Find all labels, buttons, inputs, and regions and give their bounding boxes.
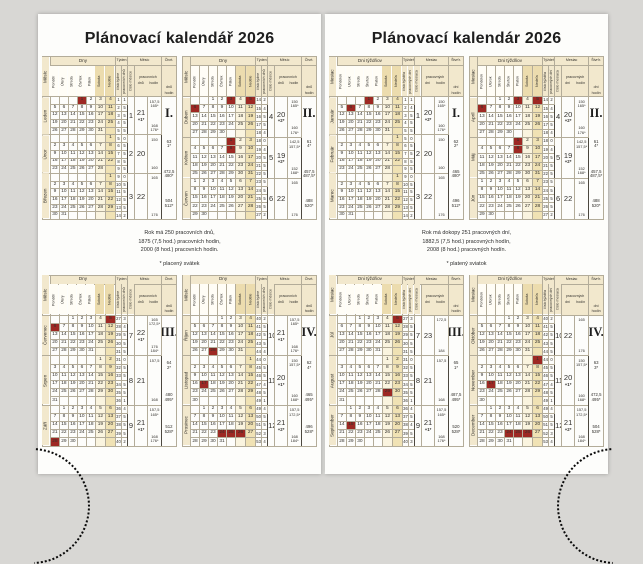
hours-wrap: 165176: [288, 179, 301, 219]
month-summary-group-header: Mesiac: [414, 275, 448, 284]
day-cell: 20: [373, 196, 382, 204]
month-hours-cell: 150165*160176*: [288, 97, 302, 138]
paid-holiday-note: * platený sviatok: [325, 261, 608, 267]
day-cell: 9: [105, 364, 115, 372]
day-cell: 24: [382, 120, 392, 128]
quarter-days-label: dnů: [162, 86, 176, 90]
day-cell: 7: [95, 181, 105, 189]
day-cell: 25: [382, 340, 392, 348]
day-cell: 21: [86, 381, 95, 389]
day-cell: 14: [209, 331, 218, 339]
day-cell: 6: [59, 104, 68, 112]
paid-holiday-extra: +2*: [562, 428, 574, 432]
day-cell: 26: [68, 389, 77, 397]
day-cell: 22: [105, 196, 115, 204]
month-hours-cell: 150165*160176*: [434, 97, 448, 135]
day-cell: 24: [496, 203, 505, 211]
month-number-cell: 3: [128, 173, 135, 219]
day-cell: [382, 173, 392, 181]
day-cell: 9: [227, 323, 236, 331]
day-cell: 4: [95, 315, 105, 323]
month-hours-cell: 165176: [575, 315, 589, 356]
day-cell: 25: [95, 340, 105, 348]
hours-value: 528*: [305, 430, 314, 434]
quarter-sub-header: dníhodín: [589, 284, 604, 315]
day-cell: [68, 97, 77, 105]
day-cell: 2: [523, 137, 533, 145]
day-cell: 8: [209, 105, 218, 113]
day-cell: 5: [105, 315, 115, 323]
working-label: pracovních: [275, 295, 301, 299]
week-row: Október12344021022165176IV.633*472,5495*…: [470, 315, 604, 323]
day-name-label: Pondělí: [191, 66, 200, 97]
day-cell: 20: [487, 340, 496, 348]
day-cell: 19: [478, 340, 487, 348]
day-cell: 25: [105, 120, 115, 128]
day-cell: 9: [337, 150, 346, 158]
quarter-sub-header: dnůhodin: [302, 284, 317, 315]
quarter-numeral: IV.: [589, 326, 604, 339]
day-cell: [105, 166, 115, 174]
day-cell: 7: [487, 105, 496, 113]
day-cell: 2: [355, 405, 364, 413]
day-cell: [209, 397, 218, 405]
month-workdays-cell: 20: [135, 135, 148, 173]
day-cell: [50, 97, 59, 105]
day-cell: 13: [105, 413, 115, 421]
day-cell: 26: [523, 430, 533, 438]
day-cell: 23: [514, 340, 523, 348]
half-year-table-bottom: MesiacDni týždňovTýždeňMesiacŠtvrťr.Pond…: [325, 275, 608, 447]
hours-8: 152168*: [575, 167, 588, 176]
quarter-sub-header: dnůhodin: [162, 284, 177, 315]
quarter-sub-header: dníhodín: [449, 284, 464, 315]
days-group-header: Dny: [50, 57, 115, 66]
month-number-sub-label: číslo měsíce: [128, 284, 135, 315]
hours-7-5: 165172,5*: [148, 318, 161, 327]
planning-table-half: MesiacDni týždňovTýždeňMesiacŠtvrťr.Pond…: [469, 275, 604, 447]
day-cell: 12: [200, 154, 209, 162]
day-cell: 27: [50, 348, 59, 356]
day-cell: 15: [392, 189, 402, 197]
day-cell: 30: [50, 212, 59, 220]
day-cell: 21: [382, 158, 392, 166]
working-label: pracovných: [422, 295, 448, 299]
week-workdays-cell: 4: [408, 104, 414, 112]
day-cell: 27: [487, 348, 496, 356]
day-cell: 23: [373, 120, 382, 128]
hours-value: 165: [288, 181, 301, 185]
month-number-cell: 9: [414, 405, 421, 446]
hours-value: 184*: [288, 439, 301, 443]
day-cell: [191, 137, 200, 145]
day-cell: [337, 173, 346, 181]
day-cell: 17: [364, 421, 373, 429]
month-number-cell: 8: [128, 356, 135, 405]
month-hours-cell: 150160: [434, 135, 448, 173]
month-name-label: September: [329, 405, 337, 446]
day-cell: 3: [86, 315, 95, 323]
month-hours-cell: 157,5165*168176*: [288, 315, 302, 356]
day-cell: [191, 97, 200, 105]
day-cell: 10: [227, 105, 236, 113]
day-cell: 27: [191, 129, 200, 137]
day-cell: 26: [364, 204, 373, 212]
day-cell: 10: [95, 104, 105, 112]
day-cell: [95, 173, 105, 181]
day-cell: 30: [355, 438, 364, 446]
day-cell: 5: [355, 364, 364, 372]
hours-wrap: 157,5165*168176*: [148, 406, 161, 446]
working-subs: dníhodín: [422, 82, 448, 86]
day-cell: [77, 438, 86, 446]
header-row-groups: MesiacDni týždňovTýždeňMesiacŠtvrťr.: [329, 275, 463, 284]
day-cell: 22: [392, 196, 402, 204]
quarter-hours-8: 512528*: [165, 425, 174, 435]
day-cell: [533, 438, 543, 446]
day-cell: 25: [246, 340, 256, 348]
hours-value: 176: [575, 213, 588, 217]
week-workdays-cell: 5: [549, 364, 555, 372]
day-cell: 18: [191, 162, 200, 170]
day-cell: 5: [218, 364, 227, 372]
working-hours-label: hodín: [436, 301, 445, 305]
day-cell: 6: [86, 143, 95, 151]
day-cell: 16: [337, 196, 346, 204]
day-cell: 24: [59, 166, 68, 174]
day-cell: 1: [514, 137, 523, 145]
day-cell: 14: [246, 187, 256, 195]
day-cell: 17: [346, 158, 355, 166]
day-cell: 8: [487, 413, 496, 421]
day-cell: 2: [200, 178, 209, 186]
month-workdays-cell: 19+2*: [275, 137, 288, 178]
month-name-label: Duben: [183, 97, 191, 138]
day-cell: 16: [77, 331, 86, 339]
day-cell: 3: [209, 178, 218, 186]
day-cell: 1: [478, 178, 487, 186]
day-cell: 11: [496, 372, 505, 380]
day-cell: [236, 129, 246, 137]
working-hours-label: hodin: [149, 82, 158, 86]
day-cell: [392, 127, 402, 135]
day-name-label: Neděle: [246, 66, 256, 97]
day-cell: 9: [236, 146, 246, 154]
hours-wrap: 150160: [148, 135, 161, 172]
working-subs: dníhodín: [562, 82, 588, 86]
day-cell: 29: [505, 348, 514, 356]
quarter-subs: dníhodín: [589, 66, 603, 97]
day-cell: 6: [227, 364, 236, 372]
day-cell: 16: [364, 331, 373, 339]
day-cell: 25: [392, 120, 402, 128]
month-column-header: Mesiac: [470, 57, 478, 97]
day-cell: 10: [373, 323, 382, 331]
week-workdays-cell: 5: [262, 323, 268, 331]
day-cell: 18: [209, 381, 218, 389]
day-cell: 1: [364, 97, 373, 105]
hours-7-5: 150: [148, 137, 161, 142]
day-cell: 28: [496, 348, 505, 356]
quarter-days-label: dní: [449, 305, 463, 309]
hours-value: 176: [148, 213, 161, 217]
hours-7-5: 157,5165*: [148, 408, 161, 417]
hours-value: 184*: [148, 349, 161, 353]
day-cell: 6: [337, 323, 346, 331]
day-cell: 6: [523, 178, 533, 186]
day-cell: 9: [478, 372, 487, 380]
day-cell: 16: [86, 112, 95, 120]
day-cell: 18: [246, 331, 256, 339]
hours-wrap: 157,5172,5*168184*: [575, 406, 588, 446]
day-cell: [236, 438, 246, 446]
quarter-hours-label: hodín: [589, 92, 603, 96]
week-group-header: Týždeň: [543, 275, 555, 284]
month-column-header: Měsíc: [183, 57, 191, 97]
day-cell: 10: [218, 413, 227, 421]
month-workdays-cell: 21+2*: [275, 405, 288, 446]
day-cell: 3: [246, 137, 256, 145]
day-cell: 15: [246, 372, 256, 380]
day-cell: 20: [77, 381, 86, 389]
day-cell: 22: [478, 203, 487, 211]
hours-7-5: 150157,5*: [575, 358, 588, 367]
day-cell: 28: [218, 170, 227, 178]
week-row: November14401120+1*150157,5*160168*: [470, 356, 604, 364]
month-hours-cell: 157,5172,5*168184*: [575, 405, 589, 446]
day-cell: 3: [95, 97, 105, 105]
day-cell: 9: [514, 323, 523, 331]
day-cell: 26: [218, 389, 227, 397]
day-cell: 5: [514, 178, 523, 186]
day-cell: 3: [236, 315, 246, 323]
day-cell: 23: [505, 121, 514, 129]
day-cell: [514, 129, 523, 137]
day-cell: 14: [478, 421, 487, 429]
day-cell: 15: [533, 372, 543, 380]
week-workdays-cell: 5: [122, 430, 128, 438]
day-cell: 6: [105, 405, 115, 413]
week-workdays-cell: 5: [122, 166, 128, 174]
day-cell: [364, 173, 373, 181]
day-cell: 13: [533, 413, 543, 421]
day-cell: 9: [523, 146, 533, 154]
day-cell: [382, 212, 392, 220]
day-cell: [373, 397, 382, 405]
quarter-summary-cell: IV.624*465495*496528*: [302, 315, 317, 446]
day-name-label: Pátek: [227, 284, 236, 315]
day-cell: [50, 405, 59, 413]
day-cell: 6: [373, 181, 382, 189]
hours-value: 172,5*: [288, 413, 301, 417]
day-cell: 27: [86, 166, 95, 174]
planning-table-half: MěsícDnyTýdenMěsícČtvrt.PondělíÚterýStře…: [182, 56, 317, 220]
day-cell: 17: [246, 154, 256, 162]
day-cell: [77, 397, 86, 405]
day-cell: 11: [355, 189, 364, 197]
day-cell: 18: [514, 421, 523, 429]
week-workdays-cell: 5: [262, 421, 268, 429]
day-cell: 18: [218, 195, 227, 203]
hours-7-5: 142,5157,5*: [288, 140, 301, 149]
day-cell: [77, 173, 86, 181]
day-cell: [505, 356, 514, 364]
hours-value: 520*: [592, 204, 601, 208]
day-cell: 12: [364, 150, 373, 158]
week-workdays-cell: 4: [262, 438, 268, 446]
day-cell: 7: [86, 364, 95, 372]
quarter-hours-8: 488520*: [592, 199, 601, 209]
day-cell: 6: [392, 405, 402, 413]
day-cell: [478, 315, 487, 323]
day-cell: 16: [392, 372, 402, 380]
day-cell: [236, 356, 246, 364]
day-cell: 25: [86, 430, 95, 438]
day-cell: 6: [86, 181, 95, 189]
working-hours-label: hodín: [576, 82, 585, 86]
days-group-header: Dny: [50, 275, 115, 284]
day-cell: 15: [200, 421, 209, 429]
day-cell: 21: [373, 381, 382, 389]
day-cell: 8: [227, 146, 236, 154]
day-cell: 31: [533, 170, 543, 178]
week-row: Únor150220150160: [42, 135, 176, 143]
month-summary-group-header: Mesiac: [414, 57, 448, 66]
day-cell: 21: [68, 120, 77, 128]
day-cell: 14: [95, 150, 105, 158]
month-hours-cell: 157,5165*168176*: [434, 405, 448, 446]
week-workdays-cell: 5: [408, 389, 414, 397]
day-cell: 10: [487, 372, 496, 380]
quarter-group-header: Štvrťr.: [449, 57, 464, 66]
hours-value: 520*: [305, 204, 314, 208]
hours-wrap: 150157,5*160168*: [575, 356, 588, 404]
day-cell: [218, 397, 227, 405]
month-number-cell: 1: [128, 97, 135, 135]
day-cell: 1: [95, 356, 105, 364]
day-cell: 13: [496, 154, 505, 162]
day-cell: 31: [505, 438, 514, 446]
day-cell: 11: [478, 154, 487, 162]
day-cell: 8: [191, 187, 200, 195]
month-workdays-cell: 22: [275, 178, 288, 219]
day-cell: 29: [105, 204, 115, 212]
day-cell: [514, 356, 523, 364]
day-cell: 13: [523, 187, 533, 195]
day-cell: 15: [227, 154, 236, 162]
day-cell: 12: [77, 189, 86, 197]
week-group-header: Týždeň: [402, 57, 414, 66]
day-cell: 11: [514, 413, 523, 421]
quarter-hours-7-5: 465495*: [305, 393, 314, 403]
day-cell: 7: [346, 323, 355, 331]
day-cell: 16: [478, 381, 487, 389]
quarter-sub-header: dnůhodin: [162, 66, 177, 97]
quarter-wrap: IV.624*465495*496528*: [302, 316, 316, 446]
week-workdays-cell: 5: [122, 158, 128, 166]
day-cell: [95, 397, 105, 405]
planning-table-half: MesiacDni týždňovTýždeňMesiacŠtvrťr.Pond…: [329, 56, 464, 220]
day-cell: [86, 135, 95, 143]
day-cell: 31: [59, 212, 68, 220]
day-cell: 4: [478, 146, 487, 154]
day-cell: 25: [209, 389, 218, 397]
quarter-paid-extra: 1*: [454, 366, 459, 370]
month-name-label: Apríl: [470, 97, 478, 138]
day-cell: 10: [523, 323, 533, 331]
working-label: pracovních: [135, 76, 161, 80]
day-cell: 11: [68, 189, 77, 197]
day-cell: 9: [373, 104, 382, 112]
quarter-hours-8: 496528*: [305, 425, 314, 435]
day-name-label: Streda: [496, 66, 505, 97]
day-cell: 6: [191, 105, 200, 113]
day-cell: 9: [50, 189, 59, 197]
day-cell: 11: [209, 372, 218, 380]
hours-8: 168176*: [288, 344, 301, 353]
day-cell: 8: [95, 364, 105, 372]
month-hours-cell: 165176: [148, 173, 162, 219]
week-row: Červenec12345273722+1*165172,5*176184*II…: [42, 315, 176, 323]
working-header: pracovnýchdníhodín: [421, 66, 448, 97]
hours-7-5: 157,5172,5*: [288, 408, 301, 417]
days-group-header: Dni týždňov: [337, 57, 402, 66]
paid-holiday-extra: +1*: [422, 428, 434, 432]
month-hours-cell: 157,5168: [434, 356, 448, 405]
day-cell: 13: [373, 150, 382, 158]
day-cell: 9: [355, 413, 364, 421]
day-cell: 17: [209, 195, 218, 203]
day-cell: 11: [86, 413, 95, 421]
day-cell: 15: [59, 421, 68, 429]
week-workdays-cell: 5: [122, 120, 128, 128]
quarter-hours-label: hodin: [162, 92, 176, 96]
hours-wrap: 150165*160176*: [288, 97, 301, 137]
hours-wrap: 157,5165*168176*: [148, 97, 161, 134]
day-cell: 14: [191, 421, 200, 429]
month-name-label: Září: [42, 405, 50, 446]
day-cell: [364, 135, 373, 143]
day-cell: 28: [382, 204, 392, 212]
day-cell: [478, 137, 487, 145]
day-cell: 7: [523, 364, 533, 372]
day-cell: 7: [382, 143, 392, 151]
day-cell: [246, 348, 256, 356]
month-number-cell: 4: [555, 97, 562, 138]
quarter-sub-header: dníhodín: [589, 66, 604, 97]
hours-7-5: 165: [575, 181, 588, 186]
hours-wrap: 157,5168: [435, 356, 448, 404]
day-cell: 21: [218, 162, 227, 170]
working-header: pracovníchdnůhodin: [275, 66, 302, 97]
day-cell: 13: [246, 413, 256, 421]
day-cell: 31: [382, 127, 392, 135]
hours-value: 176: [575, 349, 588, 353]
week-sub-label: pracovních dnů: [122, 284, 128, 315]
day-cell: 28: [533, 203, 543, 211]
week-sub-label: pracovných dní: [549, 66, 555, 97]
working-label: pracovných: [562, 76, 588, 80]
day-cell: [68, 173, 77, 181]
day-cell: [505, 211, 514, 219]
day-cell: 14: [59, 331, 68, 339]
planning-table-half: MesiacDni týždňovTýždeňMesiacŠtvrťr.Pond…: [469, 56, 604, 220]
quarter-workdays: 651*: [454, 361, 459, 371]
day-cell: 6: [50, 323, 59, 331]
day-cell: 29: [364, 127, 373, 135]
day-cell: 25: [68, 204, 77, 212]
hours-wrap: 150157,5*160168*: [288, 356, 301, 404]
